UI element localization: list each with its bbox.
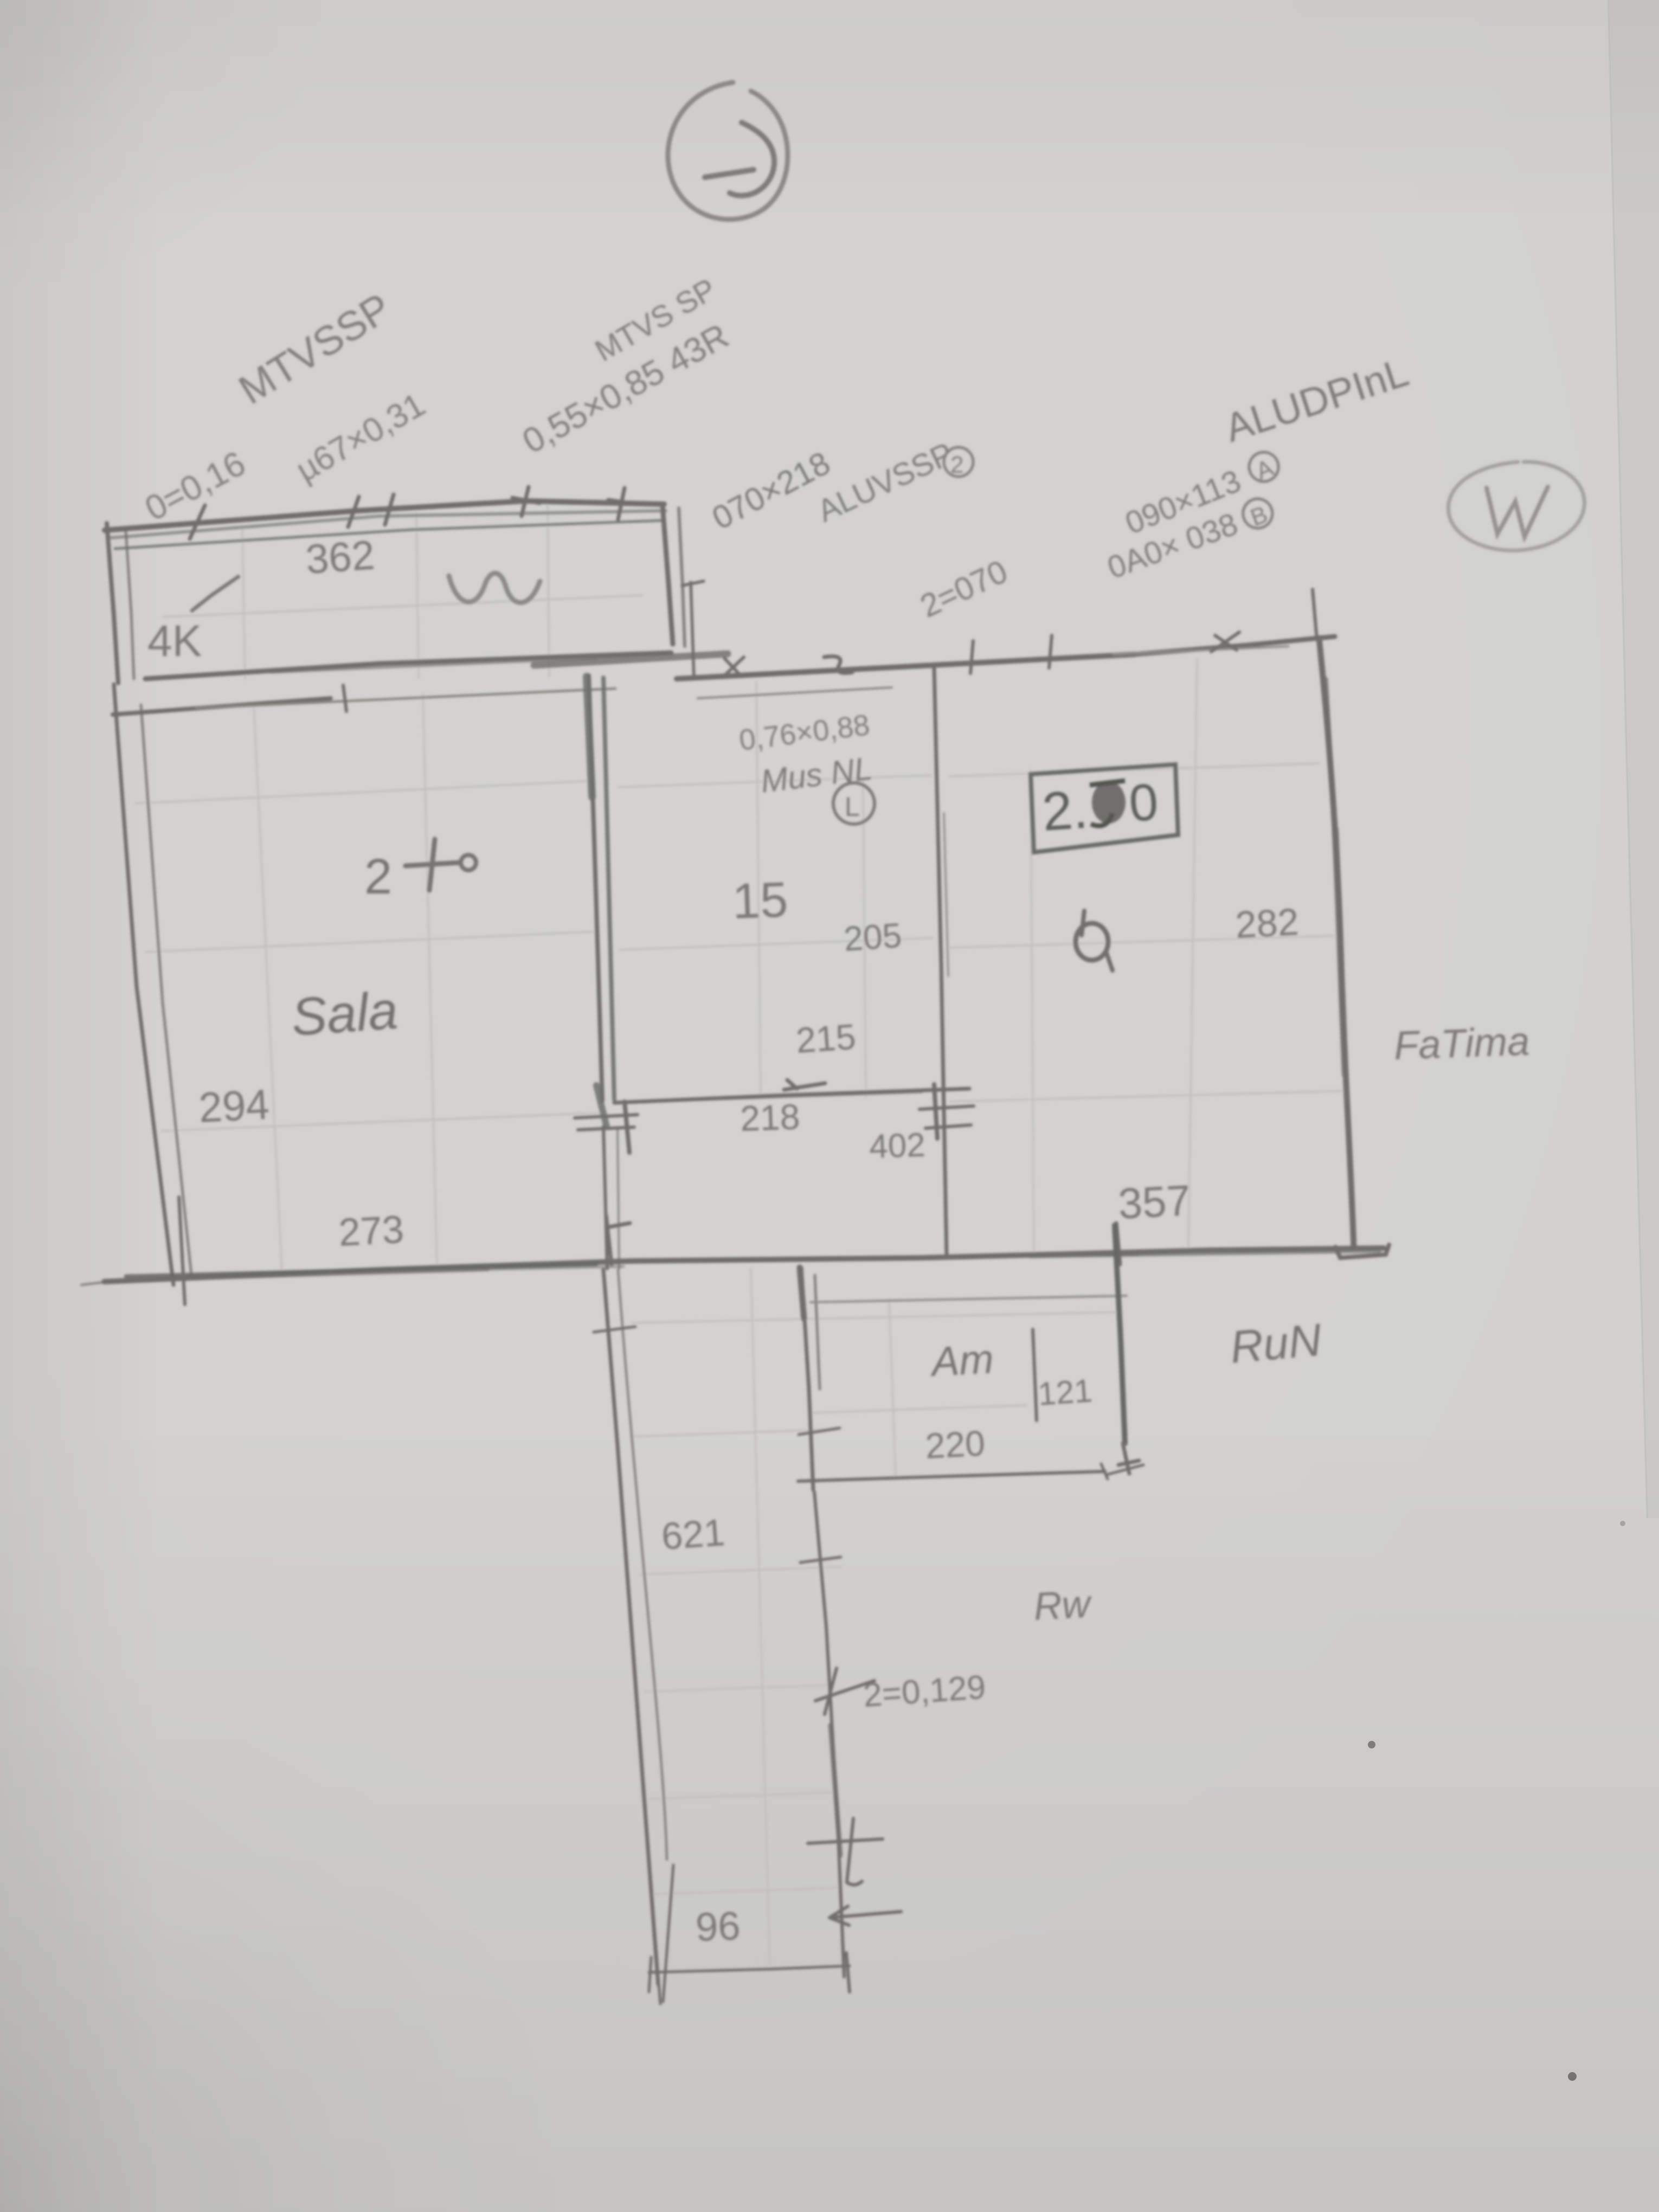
svg-text:Am: Am: [928, 1336, 994, 1385]
svg-text:205: 205: [843, 916, 903, 959]
svg-text:FaTima: FaTima: [1393, 1018, 1531, 1068]
svg-text:2: 2: [950, 452, 963, 478]
svg-text:218: 218: [740, 1096, 801, 1139]
svg-text:362: 362: [304, 532, 376, 583]
svg-text:294: 294: [197, 1080, 271, 1131]
svg-text:357: 357: [1117, 1176, 1192, 1228]
svg-text:2.: 2.: [1040, 779, 1090, 843]
svg-text:15: 15: [731, 872, 789, 929]
svg-text:L: L: [845, 792, 860, 822]
svg-text:121: 121: [1037, 1372, 1094, 1412]
svg-text:215: 215: [795, 1016, 857, 1060]
svg-text:402: 402: [869, 1126, 926, 1166]
svg-text:RuN: RuN: [1228, 1314, 1323, 1373]
svg-text:273: 273: [338, 1208, 405, 1255]
svg-text:Rw: Rw: [1033, 1582, 1094, 1629]
svg-text:Sala: Sala: [290, 980, 400, 1047]
svg-text:2: 2: [364, 849, 392, 904]
svg-text:220: 220: [924, 1423, 986, 1466]
svg-text:0: 0: [1127, 773, 1160, 832]
svg-text:96: 96: [695, 1903, 741, 1950]
svg-text:4K: 4K: [147, 616, 202, 666]
svg-text:621: 621: [660, 1511, 726, 1558]
svg-text:282: 282: [1234, 901, 1300, 946]
